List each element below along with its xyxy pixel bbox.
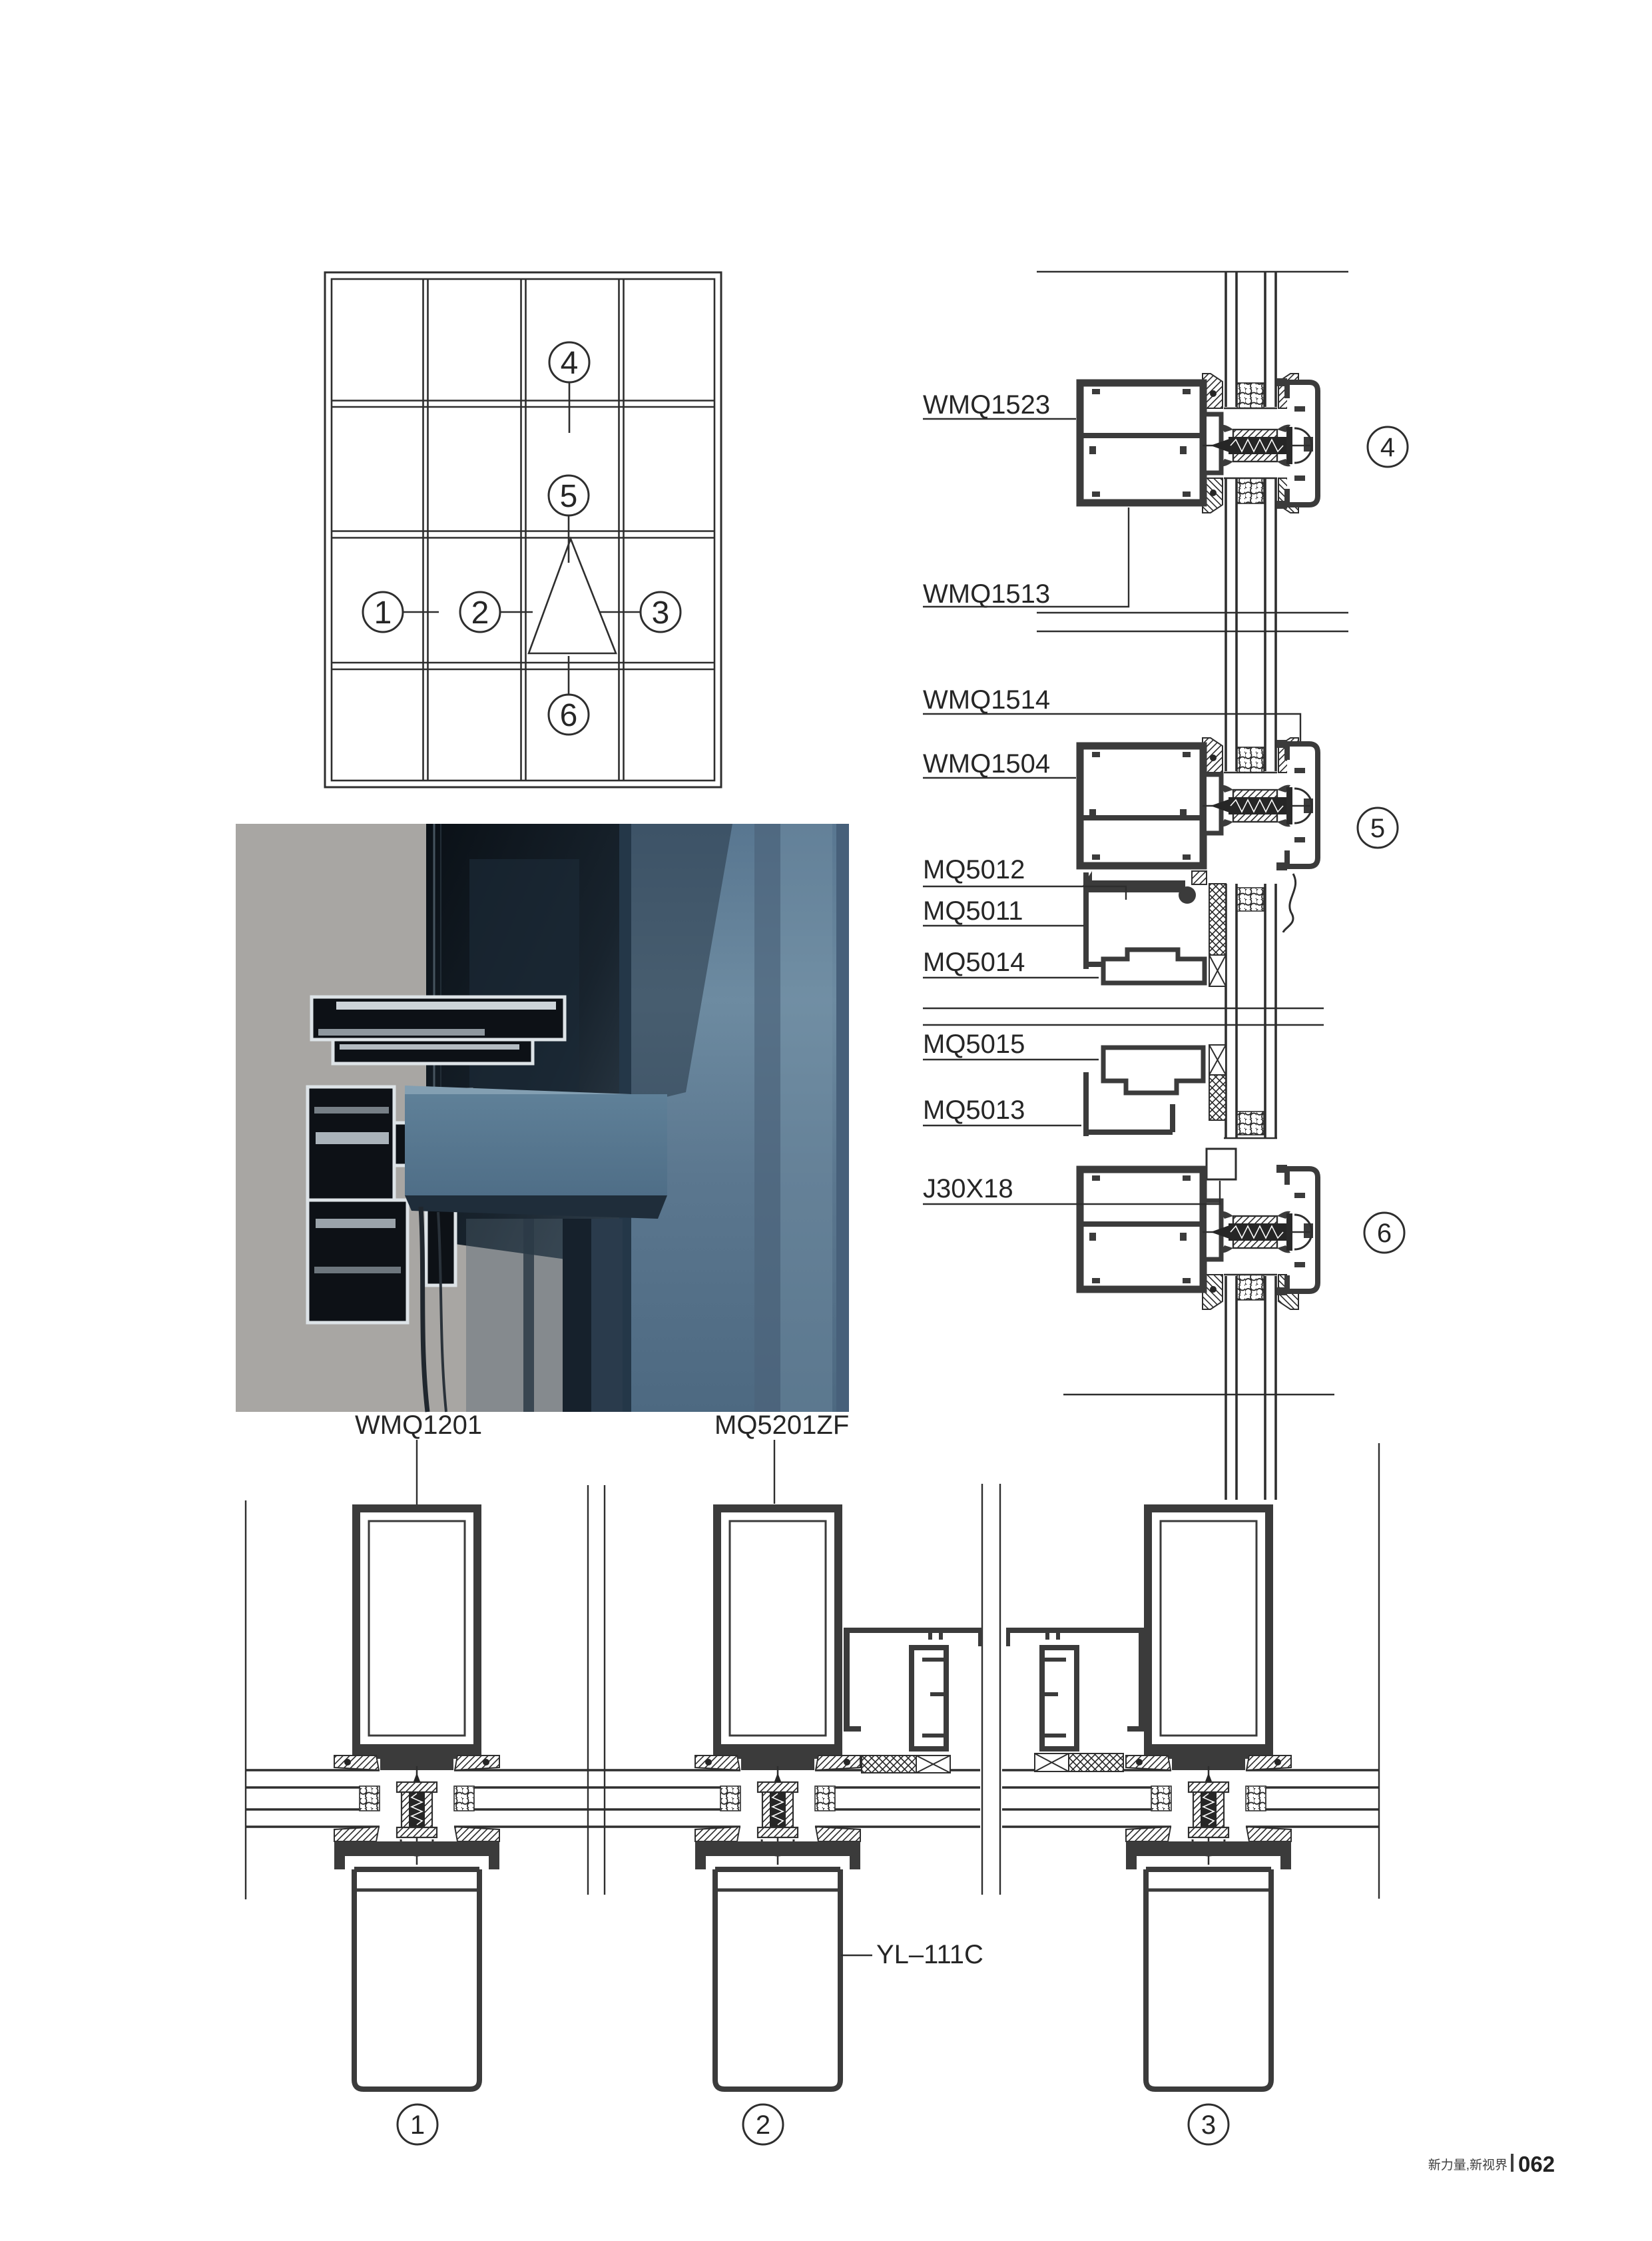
- svg-text:WMQ1504: WMQ1504: [923, 749, 1050, 779]
- svg-text:MQ5012: MQ5012: [923, 855, 1025, 884]
- svg-text:062: 062: [1518, 2152, 1555, 2176]
- svg-text:1: 1: [374, 595, 392, 631]
- svg-text:YL–111C: YL–111C: [876, 1940, 983, 1969]
- svg-text:MQ5201ZF: MQ5201ZF: [714, 1411, 849, 1440]
- svg-text:WMQ1201: WMQ1201: [355, 1411, 482, 1440]
- svg-text:6: 6: [1377, 1219, 1392, 1248]
- svg-text:MQ5014: MQ5014: [923, 948, 1025, 977]
- svg-text:WMQ1513: WMQ1513: [923, 579, 1050, 609]
- svg-text:6: 6: [560, 698, 578, 733]
- svg-text:WMQ1514: WMQ1514: [923, 685, 1050, 715]
- svg-text:2: 2: [756, 2110, 770, 2140]
- svg-text:4: 4: [1380, 433, 1395, 462]
- svg-text:4: 4: [561, 346, 579, 381]
- svg-text:MQ5011: MQ5011: [923, 896, 1023, 926]
- svg-text:MQ5015: MQ5015: [923, 1030, 1025, 1059]
- svg-text:3: 3: [652, 595, 670, 631]
- svg-text:2: 2: [471, 595, 489, 631]
- svg-text:MQ5013: MQ5013: [923, 1096, 1025, 1125]
- svg-text:5: 5: [560, 479, 578, 514]
- svg-text:WMQ1523: WMQ1523: [923, 390, 1050, 420]
- svg-text:新力量,新视界: 新力量,新视界: [1428, 2158, 1508, 2172]
- svg-text:3: 3: [1201, 2110, 1216, 2140]
- svg-text:1: 1: [410, 2110, 425, 2140]
- svg-text:J30X18: J30X18: [923, 1174, 1013, 1203]
- svg-text:5: 5: [1370, 814, 1385, 843]
